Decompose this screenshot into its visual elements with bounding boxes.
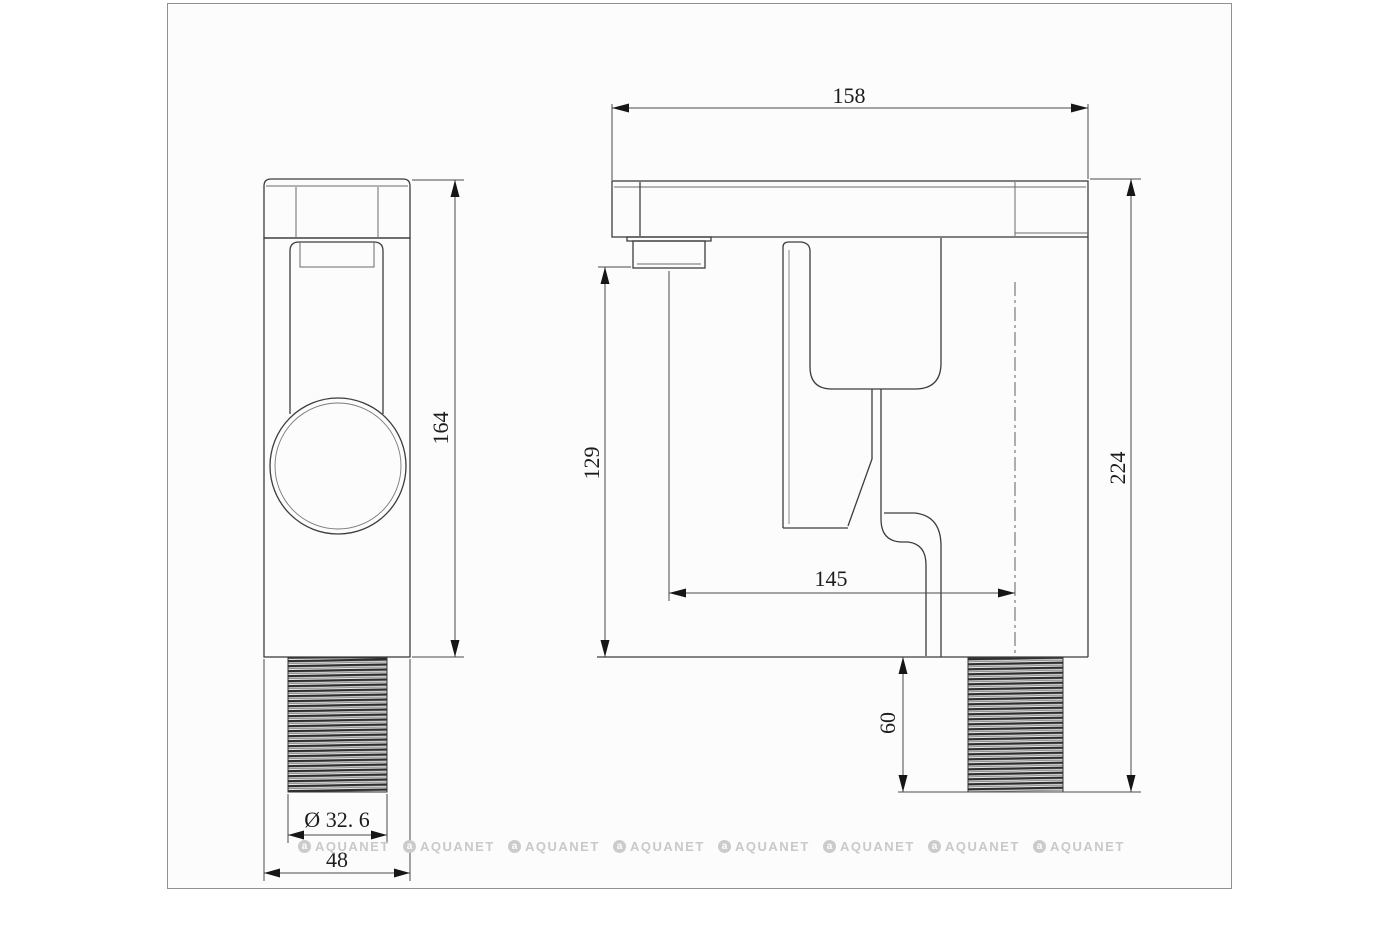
watermark-logo-icon: a [298,840,311,853]
watermark-logo-icon: a [1033,840,1046,853]
watermark: a AQUANET [823,839,915,854]
watermark: a AQUANET [1033,839,1125,854]
side-cartridge-cavity [810,238,941,389]
dim-label-spout-height: 129 [581,447,603,480]
side-channel-left [848,389,872,526]
watermark-logo-icon: a [403,840,416,853]
side-channel-right [881,389,926,656]
side-outer-wall [884,513,941,657]
watermark: a AQUANET [613,839,705,854]
dim-label-spout-reach: 145 [815,568,848,590]
watermark-text: AQUANET [630,839,705,854]
watermark-text: AQUANET [525,839,600,854]
watermark-logo-icon: a [928,840,941,853]
watermark-text: AQUANET [1050,839,1125,854]
side-view [597,181,1088,792]
side-front-wall [783,242,810,528]
dim-label-thread-length: 60 [877,712,899,734]
front-collar-plate [300,242,374,267]
side-thread [968,658,1063,792]
watermark-logo-icon: a [718,840,731,853]
watermark-text: AQUANET [315,839,390,854]
watermark-logo-icon: a [613,840,626,853]
front-cap-outline [264,179,410,238]
watermark-text: AQUANET [735,839,810,854]
watermark-text: AQUANET [945,839,1020,854]
side-spout-bar [612,181,1088,237]
watermark: a AQUANET [403,839,495,854]
watermark: a AQUANET [718,839,810,854]
watermark-text: AQUANET [420,839,495,854]
dim-label-top-length: 158 [833,85,866,107]
technical-drawing-page: 164 Ø 32. 6 48 158 224 129 145 60 a AQUA… [0,0,1400,933]
watermark-logo-icon: a [823,840,836,853]
dim-label-front-height: 164 [430,412,452,445]
watermark-text: AQUANET [840,839,915,854]
front-neck-outline [290,242,383,414]
front-ball-outline [270,398,406,534]
watermark: a AQUANET [298,839,390,854]
watermark: a AQUANET [928,839,1020,854]
front-thread [288,658,387,792]
watermark-logo-icon: a [508,840,521,853]
watermark: a AQUANET [508,839,600,854]
dim-label-overall-height: 224 [1107,452,1129,485]
dim-label-thread-diameter: Ø 32. 6 [304,809,369,831]
front-body-outline [264,238,410,657]
faucet-dimension-drawing [0,0,1400,933]
front-view [264,179,410,792]
